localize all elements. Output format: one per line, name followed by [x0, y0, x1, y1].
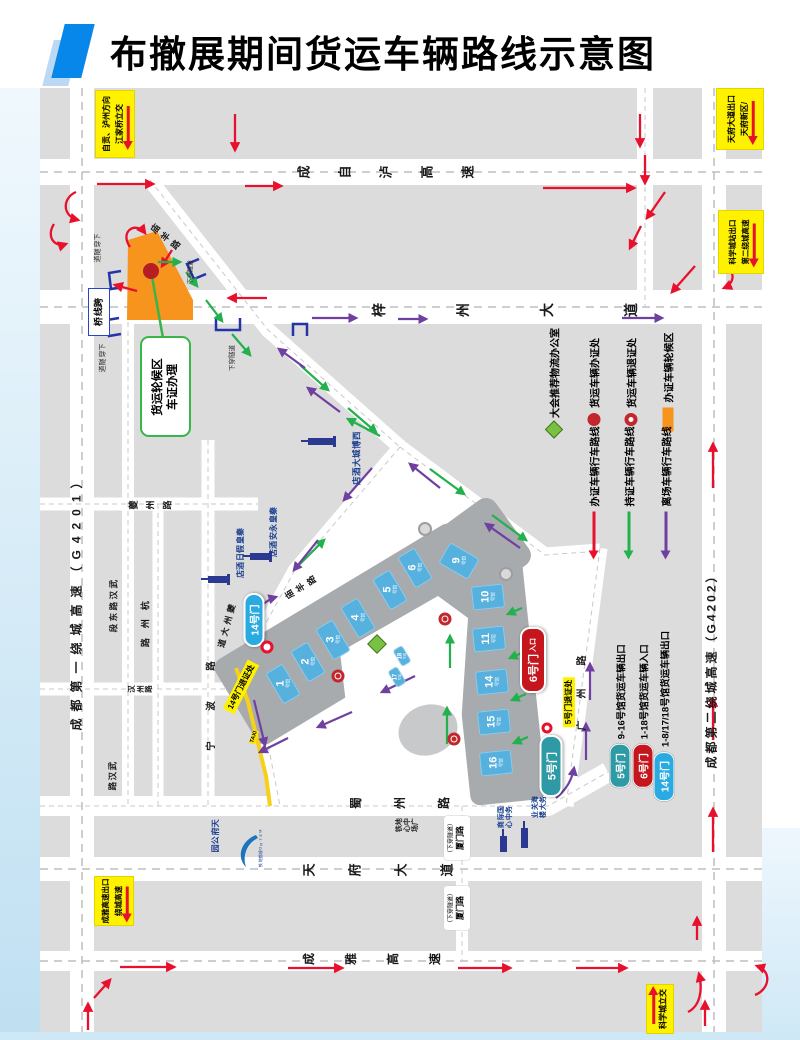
gate-14-return-marker-icon — [261, 641, 274, 654]
hotel-building-icon — [308, 438, 334, 445]
road-chengya-expwy: 成雅高速 — [303, 953, 441, 965]
hall-10: 10号馆 — [471, 583, 505, 610]
road-wuhan-east: 武汉路东段 — [110, 580, 119, 633]
overpass-label: 跨线桥 — [88, 288, 110, 336]
metro-logo-text: METRO成都地铁 — [259, 829, 263, 867]
green-arrow-icon — [628, 512, 631, 552]
xiamen-underpass-label: （下穿隧道） 厦门路 — [444, 886, 470, 930]
poi-metro-center-plaza: 地铁 中心 广场 — [396, 818, 419, 833]
podium-ring-icon — [500, 568, 512, 580]
poi-qinhuang-yongan-hotel: 秦皇永安酒店 — [270, 507, 278, 557]
road-hanzhou: 汉州路 — [128, 685, 153, 693]
hall-14: 14号馆 — [475, 668, 509, 695]
road-chengzilu-expwy: 成自泸高速 — [297, 166, 474, 179]
underpass-label: 下穿隧道 — [229, 345, 237, 371]
office-building-icon — [500, 836, 507, 852]
office-building-icon — [521, 828, 528, 848]
red-arrow-icon — [593, 512, 596, 552]
exit-label-jiangjiaqiao: 自贡、泸州方向 江家桥立交 — [95, 90, 135, 158]
gate-5-pill: 5号门 — [540, 735, 563, 797]
hall-15: 15号馆 — [477, 708, 511, 735]
poster-root: 布撤展期间货运车辆路线示意图 — [0, 0, 800, 1040]
purple-arrow-icon — [665, 512, 668, 552]
hotel-building-icon — [250, 553, 270, 560]
road-zizhou-avenue: 梓州大道 — [372, 303, 638, 317]
hall-11: 11号馆 — [472, 625, 506, 652]
permit-office-dot-icon — [439, 613, 452, 626]
road-hangzhou: 杭州路 — [141, 601, 150, 647]
xiamen-underpass-label: （下穿隧道） 厦门路 — [444, 816, 470, 860]
poi-tianfu-park: 天府公园 — [212, 819, 220, 853]
legend-return-office: 货运车辆退证处 — [624, 338, 639, 426]
road-guangzhou: 广州路 — [578, 655, 588, 731]
podium-ring-icon — [419, 523, 431, 535]
poi-intl-business-center: 国际商 务中心 — [498, 806, 513, 828]
exit-label-chengya: 成雅高速出口 绕城高速 — [94, 876, 134, 926]
exit-label-second-ring: 科学城站出口 第二绕城高速 — [718, 210, 764, 274]
road-shuzhou: 蜀州路 — [350, 797, 450, 809]
down-arrow-icon — [127, 106, 130, 142]
legend-logistics-office: 大会推荐物流办公室 — [547, 328, 562, 436]
waiting-area-callout: 货运轮候区 车证办理 — [140, 336, 191, 437]
gate-5-return-label: 5号门退证处 — [563, 677, 575, 727]
road-ningbo: 宁波路 — [207, 661, 217, 751]
poi-xibocheng-hotel: 西博城大酒店 — [353, 431, 362, 485]
gate-legend-6: 6号门 1-18号馆货运车辆入口 — [633, 644, 654, 788]
gate-5-return-marker-icon — [542, 723, 553, 734]
dot-icon — [588, 413, 601, 426]
hall-16: 16号馆 — [479, 749, 513, 776]
poi-qinhuang-jiari-hotel: 秦皇假日酒店 — [237, 528, 245, 578]
permit-office-dot-icon — [143, 263, 159, 279]
gate-14-pill: 14号门 — [244, 593, 265, 647]
diamond-icon — [545, 420, 563, 438]
label-kexuecheng-interchange: 科学城立交 — [646, 984, 674, 1034]
road-wuhan: 武汉路 — [109, 762, 118, 791]
permit-office-dot-icon — [448, 733, 461, 746]
ring-icon — [625, 413, 638, 426]
road-kuizhou-rd: 夔州路 — [129, 501, 172, 510]
underpass-label: 下穿隧道 — [95, 233, 102, 262]
legend-route-leave: 离场车辆行车路线 — [659, 427, 674, 552]
underpass-label: 下穿隧道 — [188, 260, 196, 284]
exit-label-tianfu: 天府大道出口 天府新区/ — [716, 88, 764, 150]
up-arrow-icon — [652, 994, 655, 1024]
permit-office-dot-icon — [332, 670, 345, 683]
hotel-building-icon — [208, 576, 228, 583]
underpass-label: 下穿隧道 — [100, 343, 107, 372]
legend-route-holder: 持证车辆行车路线 — [622, 427, 637, 552]
legend-waiting-zone: 办证车辆轮候区 — [661, 333, 676, 432]
gate-legend-5: 5号门 9-16号馆货运车辆出口 — [610, 644, 631, 788]
gate-legend-14: 14号门 1-8/17/18号馆货运车辆出口 — [654, 631, 675, 801]
road-tianfu-avenue: 天府大道 — [302, 864, 453, 877]
down-arrow-icon — [126, 887, 129, 915]
legend-permit-office: 货运车辆办证处 — [587, 338, 602, 426]
down-arrow-icon — [752, 101, 755, 137]
down-arrow-icon — [753, 224, 756, 260]
poi-customs-building: 海关业 务大楼 — [532, 796, 547, 818]
gate-6-pill: 6号门 入口 — [520, 627, 546, 693]
legend-route-permit: 办证车辆行车路线 — [587, 427, 602, 552]
road-g4201: 成都第一绕城高速（G4201） — [70, 469, 85, 730]
road-g4202: 成都第二绕城高速（G4202） — [705, 567, 720, 768]
